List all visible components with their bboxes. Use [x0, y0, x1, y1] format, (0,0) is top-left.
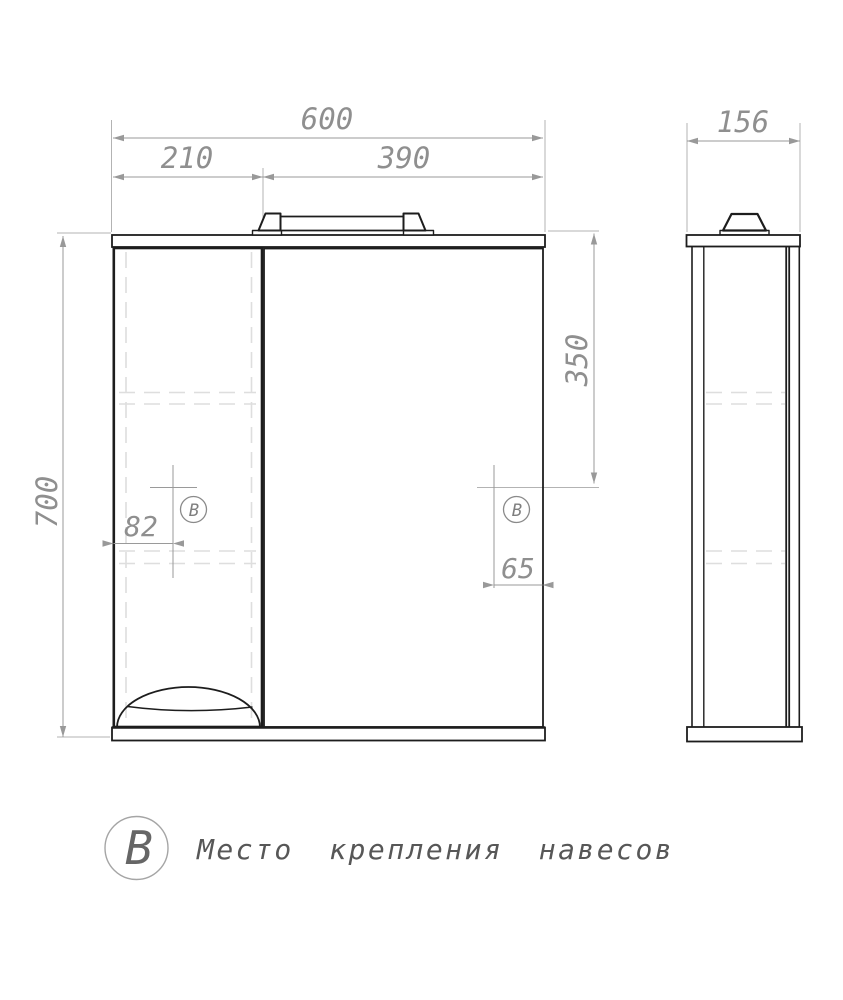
bottom-shelf-side	[687, 727, 802, 742]
mount-marker-left: В	[150, 465, 207, 578]
dim-700-label: 700	[30, 476, 64, 528]
door-handle-inner-line	[128, 707, 253, 711]
dim-65-label: 65	[501, 552, 535, 585]
lamp-front	[253, 214, 434, 236]
hidden-shelf-upper	[119, 393, 256, 405]
dim-210-label: 210	[161, 141, 213, 175]
dimension-mount-from-top: 350	[560, 234, 597, 484]
mount-marker-right-letter: В	[512, 501, 522, 521]
legend-label: Место крепления навесов	[196, 833, 674, 866]
lamp-side	[720, 214, 769, 235]
dimension-depth: 156	[687, 105, 800, 144]
side-view: 156	[687, 105, 803, 742]
dim-390-label: 390	[377, 141, 430, 175]
legend: В Место крепления навесов	[105, 817, 674, 880]
hidden-shelf-lower-side	[706, 551, 785, 564]
dim-600-label: 600	[301, 102, 353, 136]
dimension-height: 700	[30, 236, 66, 737]
dimension-total-width: 600	[113, 102, 543, 141]
dim-82-label: 82	[124, 510, 158, 543]
extension-lines-front	[57, 120, 599, 737]
technical-drawing-page: 600 210 390 700 350	[0, 0, 843, 1000]
mirror-cabinet-drawing: 600 210 390 700 350	[0, 0, 843, 1000]
dim-156-label: 156	[717, 105, 769, 139]
side-body	[692, 247, 799, 728]
top-board-front	[112, 235, 545, 247]
hidden-shelf-lower	[119, 551, 256, 564]
top-board-side	[687, 235, 801, 247]
front-view: 600 210 390 700 350	[30, 102, 599, 741]
dim-350-label: 350	[560, 334, 594, 387]
bottom-shelf-front	[112, 728, 545, 741]
legend-marker-letter: В	[125, 821, 153, 875]
dimension-sections: 210 390	[113, 141, 543, 180]
mount-marker-left-letter: В	[189, 501, 199, 521]
hidden-shelf-upper-side	[706, 393, 785, 405]
